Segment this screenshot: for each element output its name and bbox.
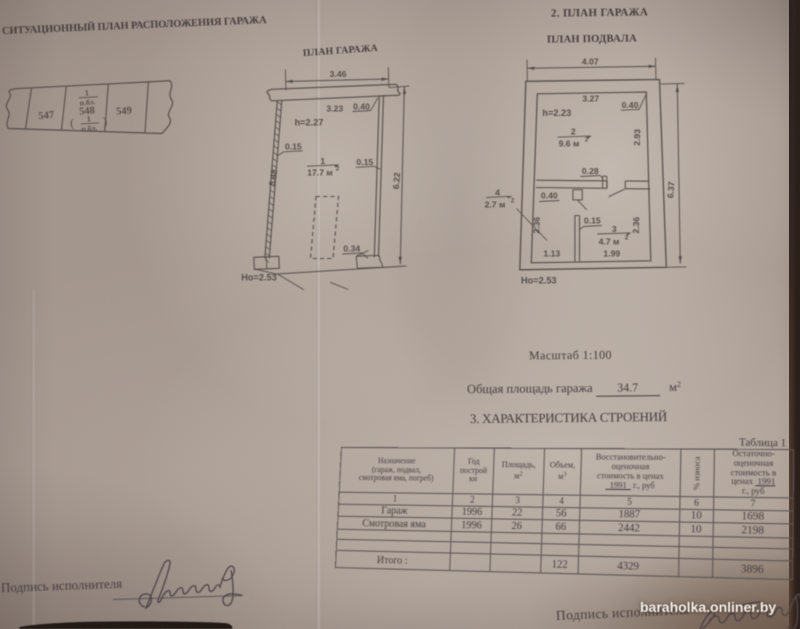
svg-text:0.15: 0.15 bbox=[285, 142, 302, 152]
svg-text:(: ( bbox=[70, 116, 75, 130]
svg-text:1.13: 1.13 bbox=[543, 248, 560, 258]
svg-text:h=2.27: h=2.27 bbox=[295, 118, 324, 128]
svg-text:0.34: 0.34 bbox=[343, 243, 360, 253]
svg-text:3.46: 3.46 bbox=[330, 69, 347, 79]
svg-text:3.23: 3.23 bbox=[326, 103, 343, 113]
svg-text:2.36: 2.36 bbox=[631, 216, 642, 233]
svg-text:4.07: 4.07 bbox=[582, 56, 599, 66]
svg-text:1.99: 1.99 bbox=[603, 249, 620, 259]
svg-text:Но=2.53: Но=2.53 bbox=[521, 276, 557, 286]
svg-text:0.15: 0.15 bbox=[584, 215, 601, 225]
svg-text:2.93: 2.93 bbox=[632, 129, 643, 146]
svg-text:17.7 м: 17.7 м bbox=[307, 168, 332, 178]
svg-text:п.бл.: п.бл. bbox=[79, 97, 96, 107]
svg-text:4: 4 bbox=[495, 187, 500, 197]
svg-text:): ) bbox=[103, 114, 108, 128]
svg-text:6.22: 6.22 bbox=[391, 172, 402, 190]
svg-text:3: 3 bbox=[612, 224, 617, 234]
svg-text:2: 2 bbox=[336, 167, 340, 173]
svg-text:2: 2 bbox=[625, 236, 629, 242]
svg-text:0.40: 0.40 bbox=[353, 101, 370, 111]
svg-text:3.27: 3.27 bbox=[582, 94, 599, 104]
svg-text:2: 2 bbox=[511, 199, 515, 205]
svg-text:0.28: 0.28 bbox=[582, 166, 599, 176]
svg-text:4.7 м: 4.7 м bbox=[599, 236, 620, 246]
svg-text:0.15: 0.15 bbox=[356, 157, 373, 167]
svg-text:5.48: 5.48 bbox=[267, 168, 280, 186]
svg-text:1: 1 bbox=[84, 88, 89, 97]
svg-text:h=2.23: h=2.23 bbox=[542, 108, 571, 118]
svg-text:0.40: 0.40 bbox=[622, 100, 639, 110]
svg-text:2.7 м: 2.7 м bbox=[485, 199, 506, 209]
svg-text:0.40: 0.40 bbox=[541, 190, 558, 200]
svg-text:1: 1 bbox=[320, 156, 325, 166]
svg-text:9.6 м: 9.6 м bbox=[559, 138, 580, 148]
svg-text:1: 1 bbox=[86, 114, 91, 123]
svg-text:2: 2 bbox=[571, 127, 576, 137]
svg-text:6.37: 6.37 bbox=[665, 181, 676, 199]
svg-text:Но=2.53: Но=2.53 bbox=[241, 273, 277, 283]
svg-text:п.бл.: п.бл. bbox=[81, 123, 98, 133]
svg-text:547: 547 bbox=[38, 110, 55, 122]
svg-text:549: 549 bbox=[116, 105, 133, 117]
